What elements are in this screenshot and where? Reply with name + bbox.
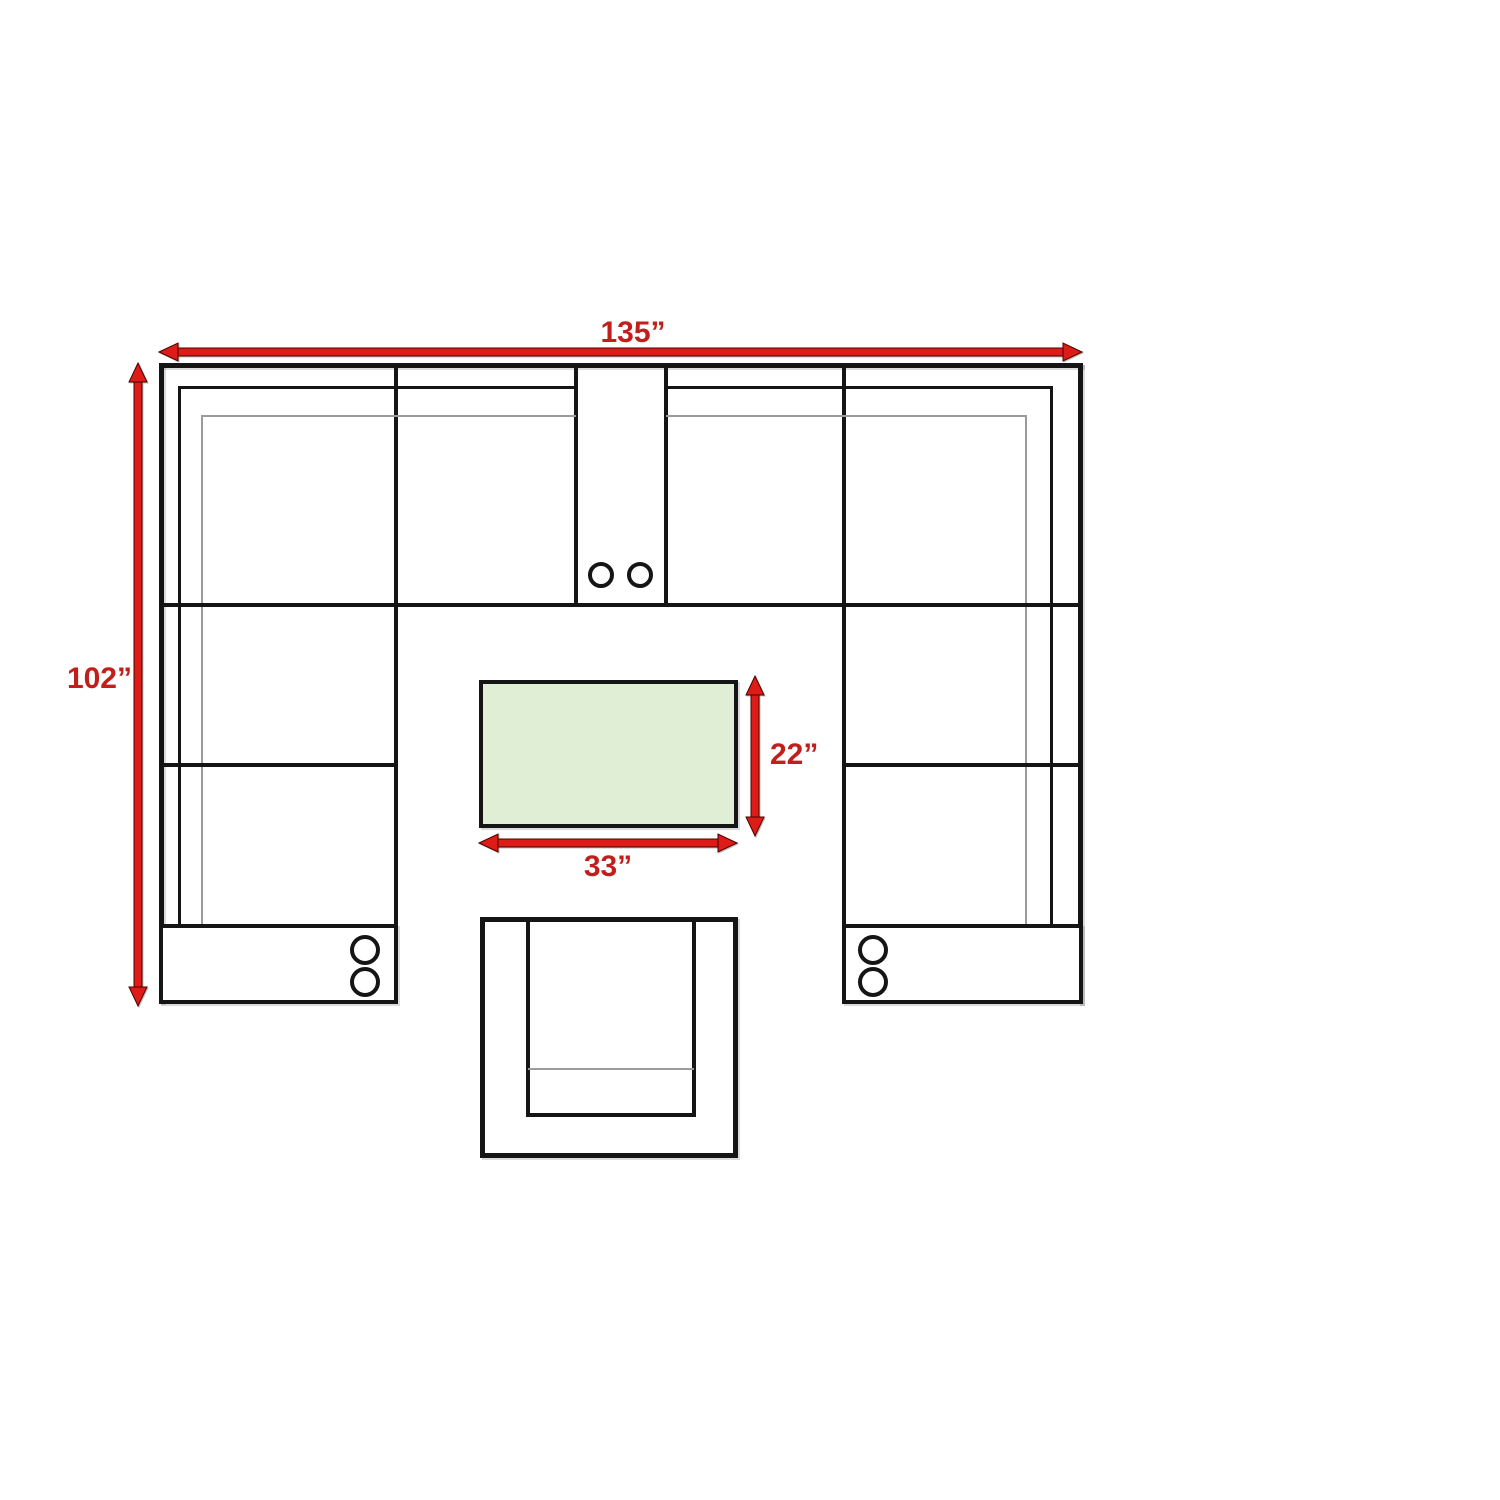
backrest-cushion-line-right [666, 415, 1027, 417]
arrow-shaft [176, 348, 1065, 356]
arrow-shaft [496, 839, 720, 847]
armrest-cushion-line-left [201, 415, 203, 928]
arrowhead-right-icon [718, 834, 737, 852]
arrowhead-up-icon [129, 363, 147, 382]
cupholder-icon [627, 562, 653, 588]
armrest-cushion-line-right [1025, 415, 1027, 928]
armchair-seat-crease-line [528, 1068, 694, 1070]
table-width-dimension-label: 33” [543, 852, 673, 882]
arrowhead-left-icon [479, 834, 498, 852]
armrest-inner-line-right [1050, 386, 1053, 928]
armrest-inner-line-left [178, 386, 181, 928]
sectional-floorplan-diagram: 135” 102” 22” 33” [0, 0, 1500, 1500]
backrest-inner-line-left [178, 386, 578, 389]
sectional-outer-left-edge [159, 363, 164, 1003]
arrowhead-right-icon [1063, 343, 1082, 361]
table-depth-dimension-arrow [743, 675, 767, 837]
width-dimension-label: 135” [558, 318, 708, 348]
coffee-table [479, 680, 738, 828]
armchair-inner-bottom-line [526, 1113, 696, 1117]
left-column-seat-seam [159, 763, 398, 767]
cupholder-icon [858, 967, 888, 997]
depth-dimension-label: 102” [28, 664, 132, 694]
cupholder-icon [858, 935, 888, 965]
seat-row-seam-top [159, 603, 1083, 607]
cupholder-icon [588, 562, 614, 588]
arrowhead-up-icon [746, 676, 764, 695]
right-column-seat-seam [842, 763, 1083, 767]
armchair-inner-left-line [526, 920, 530, 1117]
seat-seam-right-column [842, 363, 846, 1004]
console-strip-right-edge [664, 363, 668, 607]
armchair-inner-right-line [692, 920, 696, 1117]
arrowhead-down-icon [129, 987, 147, 1006]
cupholder-icon [350, 935, 380, 965]
cupholder-icon [350, 967, 380, 997]
backrest-cushion-line-left [201, 415, 576, 417]
sectional-outer-right-edge [1078, 363, 1083, 1004]
arrow-shaft [751, 693, 759, 819]
backrest-inner-line-right [664, 386, 1053, 389]
arrowhead-down-icon [746, 817, 764, 836]
table-depth-dimension-label: 22” [770, 740, 840, 770]
console-strip-left-edge [574, 363, 578, 607]
arrowhead-left-icon [159, 343, 178, 361]
armchair-outline [480, 917, 738, 1158]
seat-seam-left-column [394, 363, 398, 1003]
arrow-shaft [134, 380, 142, 989]
